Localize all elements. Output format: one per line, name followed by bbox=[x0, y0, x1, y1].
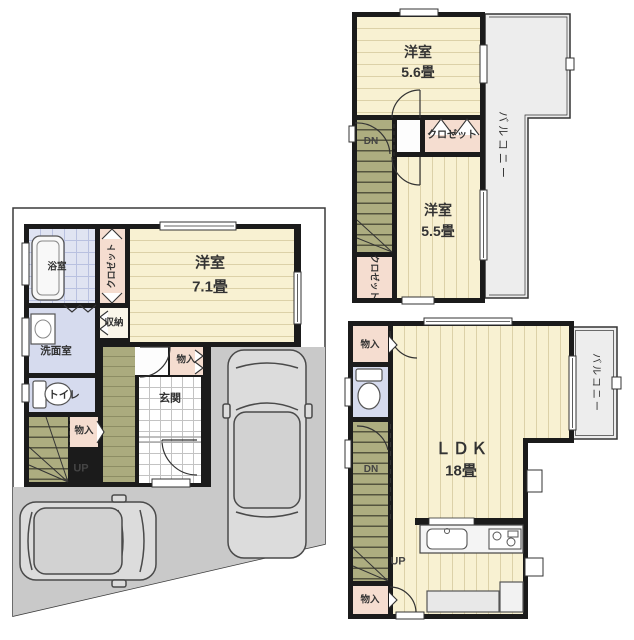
label-2f-ldk-size: 18畳 bbox=[445, 464, 477, 479]
label-3f-closet-side: クロゼット bbox=[370, 254, 379, 299]
label-2f-up: UP bbox=[390, 557, 405, 568]
window-1f-washroom bbox=[22, 318, 29, 356]
label-3f-room-a-size: 5.6畳 bbox=[401, 65, 434, 79]
label-1f-storage: 収納 bbox=[104, 318, 123, 328]
label-1f-room-name: 洋室 bbox=[195, 256, 225, 271]
label-1f-storage-entrance: 物入 bbox=[176, 355, 195, 365]
label-2f-ldk-name: ＬＤＫ bbox=[435, 442, 489, 458]
label-3f-room-b-size: 5.5畳 bbox=[421, 224, 454, 238]
label-1f-closet: クロゼット bbox=[108, 243, 117, 288]
label-1f-washroom: 洗面室 bbox=[40, 346, 72, 357]
window-2f-bottom bbox=[396, 612, 424, 619]
label-2f-storage-top: 物入 bbox=[360, 340, 379, 350]
label-1f-entrance: 玄関 bbox=[159, 394, 181, 405]
window-2f-left-toilet bbox=[345, 378, 351, 406]
label-3f-room-a-name: 洋室 bbox=[404, 45, 432, 59]
car-icon-horizontal bbox=[20, 495, 156, 587]
label-3f-room-b-name: 洋室 bbox=[424, 203, 452, 217]
label-2f-storage-bottom: 物入 bbox=[360, 595, 379, 605]
floorplan-image: 洋室 5.6畳 クロゼット DN 洋室 5.5畳 クロゼット バルコニー 浴室 … bbox=[0, 0, 634, 640]
window-3f-right-a bbox=[480, 45, 487, 83]
toilet-icon-2f bbox=[356, 369, 382, 409]
window-3f-bottom bbox=[402, 297, 434, 304]
window-3f-left bbox=[349, 126, 355, 142]
label-3f-dn: DN bbox=[364, 137, 378, 147]
label-3f-balcony: バルコニー bbox=[497, 111, 508, 181]
sink-icon bbox=[31, 314, 55, 344]
label-1f-up: UP bbox=[73, 464, 88, 475]
label-2f-balcony: バルコニー bbox=[590, 353, 600, 413]
kitchen-counter-icon bbox=[415, 518, 523, 553]
label-1f-toilet: トイレ bbox=[48, 390, 80, 401]
window-1f-bath bbox=[22, 243, 29, 285]
window-1f-porch bbox=[152, 479, 190, 487]
label-3f-closet-top: クロゼット bbox=[427, 131, 477, 141]
label-1f-storage-stairs: 物入 bbox=[74, 426, 93, 436]
window-1f-toilet bbox=[22, 384, 29, 402]
fixtures-layer bbox=[0, 0, 634, 640]
window-2f-left-stairs bbox=[345, 440, 351, 468]
car-icon-vertical bbox=[223, 350, 312, 558]
label-2f-dn: DN bbox=[364, 465, 378, 475]
kitchen-sink-icon bbox=[427, 529, 467, 549]
label-1f-bath: 浴室 bbox=[47, 262, 66, 272]
label-1f-room-size: 7.1畳 bbox=[192, 280, 228, 295]
window-3f-top bbox=[400, 9, 438, 16]
